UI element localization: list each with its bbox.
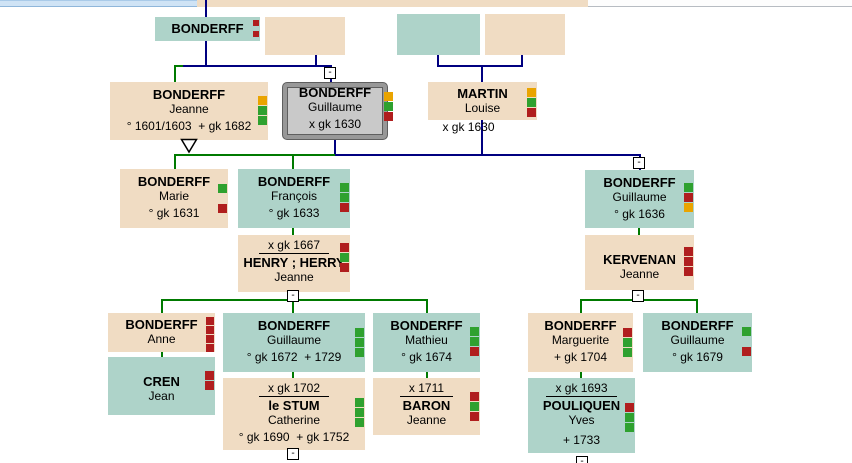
person-given-name: Mathieu [373, 333, 480, 348]
status-flag-red [218, 204, 227, 213]
status-flag-red [623, 328, 632, 337]
person-surname: BONDERFF [528, 318, 633, 333]
person-box-guillaume-selected[interactable]: BONDERFF Guillaume x gk 1630 [282, 82, 388, 140]
cropped-box-blue [0, 0, 197, 7]
tree-line [335, 154, 641, 156]
cropped-box-tan [197, 0, 588, 7]
person-given-name: François [238, 189, 350, 204]
status-flag-green [340, 193, 349, 202]
status-flag-green [625, 423, 634, 432]
tree-line [696, 299, 698, 313]
status-flags [684, 247, 693, 277]
marriage-date-line: x 1711 [373, 381, 480, 397]
person-surname: BONDERFF [223, 318, 365, 333]
person-box-bonderff-ancestor[interactable]: BONDERFF [155, 17, 260, 41]
status-flag-red [684, 193, 693, 202]
tree-line [174, 65, 176, 82]
tree-line [426, 299, 428, 313]
person-given-name: Catherine [223, 413, 365, 428]
status-flag-green [355, 408, 364, 417]
person-box-unnamed-mother-2[interactable] [485, 14, 565, 55]
person-dates: ° gk 1636 [585, 207, 694, 222]
person-box-kervenan-jeanne[interactable]: KERVENAN Jeanne [585, 235, 694, 290]
status-flag-red [340, 263, 349, 272]
person-box-francois[interactable]: BONDERFF François ° gk 1633 [238, 169, 350, 228]
status-flag-red [684, 247, 693, 256]
person-given-name: Jeanne [238, 270, 350, 285]
collapse-toggle[interactable]: - [287, 448, 299, 460]
person-box-unnamed-father-2[interactable] [397, 14, 480, 55]
person-dates: ° 1601/1603 + gk 1682 [110, 119, 268, 134]
person-surname: KERVENAN [585, 252, 694, 267]
person-dates: ° gk 1690 + gk 1752 [223, 430, 365, 445]
person-box-marie[interactable]: BONDERFF Marie ° gk 1631 [120, 169, 228, 228]
person-box-baron-jeanne[interactable]: x 1711 BARON Jeanne [373, 378, 480, 435]
tree-line [205, 41, 207, 66]
person-given-name: Jeanne [373, 413, 480, 428]
status-flag-red [625, 403, 634, 412]
status-flags [340, 183, 349, 213]
person-given-name: Marie [120, 189, 228, 204]
status-flag-green [625, 413, 634, 422]
status-flag-green [258, 116, 267, 125]
status-flags [470, 327, 479, 357]
person-given-name: Guillaume [283, 100, 387, 115]
person-surname: POULIQUEN [528, 398, 635, 413]
status-flag-green [258, 106, 267, 115]
status-flag-red [206, 344, 214, 352]
status-flag-red [205, 381, 214, 390]
status-flag-green [340, 253, 349, 262]
status-flag-green [355, 338, 364, 347]
person-marriage-date: x gk 1630 [283, 117, 387, 132]
status-flag-red [206, 335, 214, 343]
status-flag-yellow [684, 203, 693, 212]
status-flag-green [355, 328, 364, 337]
status-flag-red [684, 267, 693, 276]
status-flag-green [384, 102, 393, 111]
person-box-henry-jeanne[interactable]: x gk 1667 HENRY ; HERRY Jeanne [238, 235, 350, 292]
tree-line [437, 65, 523, 67]
status-flag-yellow [258, 96, 267, 105]
marriage-date: x 1711 [400, 381, 453, 397]
collapse-toggle[interactable]: - [324, 67, 336, 79]
status-flag-red [253, 31, 259, 37]
person-dates: + 1733 [528, 433, 635, 448]
status-flag-red [470, 412, 479, 421]
canvas-top-edge [588, 0, 852, 7]
status-flag-green [623, 348, 632, 357]
status-flags [340, 243, 349, 273]
person-given-name: Louise [428, 101, 537, 116]
marriage-date: x gk 1693 [546, 381, 616, 397]
person-given-name: Anne [108, 332, 215, 347]
status-flags [205, 371, 214, 391]
status-flags [206, 317, 214, 353]
person-box-marguerite[interactable]: BONDERFF Marguerite + gk 1704 [528, 313, 633, 372]
person-box-pouliquen-yves[interactable]: x gk 1693 POULIQUEN Yves + 1733 [528, 378, 635, 453]
status-flags [742, 327, 751, 357]
more-descendants-triangle-icon[interactable] [180, 138, 198, 154]
tree-line [315, 55, 317, 67]
status-flag-green [623, 338, 632, 347]
status-flag-red [470, 347, 479, 356]
collapse-toggle[interactable]: - [632, 290, 644, 302]
status-flag-red [206, 326, 214, 334]
status-flags [355, 328, 364, 358]
collapse-toggle[interactable]: - [633, 157, 645, 169]
person-surname: BONDERFF [585, 175, 694, 190]
status-flag-red [340, 243, 349, 252]
person-dates: ° gk 1633 [238, 206, 350, 221]
status-flag-green [355, 418, 364, 427]
person-surname: le STUM [223, 398, 365, 413]
marriage-date-label: x gk 1630 [414, 120, 523, 134]
tree-line [292, 228, 294, 235]
person-surname: BARON [373, 398, 480, 413]
person-box-guillaume-1679[interactable]: BONDERFF Guillaume ° gk 1679 [643, 313, 752, 372]
person-dates: ° gk 1674 [373, 350, 480, 365]
person-surname: BONDERFF [120, 174, 228, 189]
collapse-toggle[interactable]: - [287, 290, 299, 302]
person-given-name: Jeanne [585, 267, 694, 282]
status-flags [623, 328, 632, 358]
person-surname: BONDERFF [110, 87, 268, 102]
tree-line [292, 154, 294, 169]
person-surname: MARTIN [428, 86, 537, 101]
status-flag-green [340, 183, 349, 192]
status-flag-green [527, 98, 536, 107]
status-flag-green [218, 184, 227, 193]
status-flags [470, 392, 479, 422]
person-given-name: Jeanne [110, 102, 268, 117]
family-tree-canvas: BONDERFF BONDERFF Jeanne ° 1601/1603 + g… [0, 0, 852, 463]
person-box-lestum-catherine[interactable]: x gk 1702 le STUM Catherine ° gk 1690 + … [223, 378, 365, 450]
marriage-date-line: x gk 1667 [238, 238, 350, 254]
status-flag-green [355, 398, 364, 407]
person-given-name: Guillaume [643, 333, 752, 348]
person-box-martin-louise[interactable]: MARTIN Louise [428, 82, 537, 120]
marriage-date-line: x gk 1702 [223, 381, 365, 397]
status-flag-green [470, 402, 479, 411]
person-surname: BONDERFF [283, 85, 387, 100]
person-dates: ° gk 1679 [643, 350, 752, 365]
tree-line [638, 228, 640, 235]
person-box-unnamed-spouse-1[interactable] [265, 17, 345, 55]
status-flag-red [340, 203, 349, 212]
status-flag-yellow [527, 88, 536, 97]
status-flag-green [470, 337, 479, 346]
person-surname: BONDERFF [108, 317, 215, 332]
person-box-anne[interactable]: BONDERFF Anne [108, 313, 215, 352]
person-box-guillaume-1672[interactable]: BONDERFF Guillaume ° gk 1672 + 1729 [223, 313, 365, 372]
tree-line [181, 65, 332, 67]
collapse-toggle[interactable]: - [576, 456, 588, 463]
person-surname: BONDERFF [643, 318, 752, 333]
status-flags [355, 398, 364, 428]
person-box-mathieu[interactable]: BONDERFF Mathieu ° gk 1674 [373, 313, 480, 372]
status-flag-green [684, 183, 693, 192]
person-given-name: Jean [108, 389, 215, 404]
status-flag-red [527, 108, 536, 117]
marriage-date-line: x gk 1693 [528, 381, 635, 397]
tree-line [174, 154, 176, 169]
person-surname: CREN [108, 374, 215, 389]
person-surname: HENRY ; HERRY [238, 255, 350, 270]
person-given-name: Yves [528, 413, 635, 428]
status-flag-yellow [384, 92, 393, 101]
status-flag-red [253, 20, 259, 26]
status-flag-red [470, 392, 479, 401]
tree-line [174, 154, 335, 156]
tree-line [580, 299, 582, 313]
person-dates: ° gk 1631 [120, 206, 228, 221]
person-box-cren-jean[interactable]: CREN Jean [108, 357, 215, 415]
marriage-date: x gk 1702 [259, 381, 329, 397]
tree-line [481, 65, 483, 82]
tree-line [205, 0, 207, 17]
status-flag-green [470, 327, 479, 336]
person-surname: BONDERFF [238, 174, 350, 189]
status-flags [384, 92, 393, 122]
marriage-date: x gk 1667 [259, 238, 329, 254]
status-flag-green [742, 327, 751, 336]
status-flags [625, 403, 634, 433]
person-box-jeanne[interactable]: BONDERFF Jeanne ° 1601/1603 + gk 1682 [110, 82, 268, 140]
person-given-name: Marguerite [528, 333, 633, 348]
person-given-name: Guillaume [223, 333, 365, 348]
tree-line [161, 299, 163, 313]
status-flags [218, 184, 227, 214]
status-flag-red [205, 371, 214, 380]
status-flags [527, 88, 536, 118]
status-flag-red [684, 257, 693, 266]
person-box-guillaume-1636[interactable]: BONDERFF Guillaume ° gk 1636 [585, 170, 694, 228]
status-flags [684, 183, 693, 213]
status-flags [253, 20, 259, 42]
person-given-name: Guillaume [585, 190, 694, 205]
person-surname: BONDERFF [155, 17, 260, 40]
status-flags [258, 96, 267, 126]
person-dates: + gk 1704 [528, 350, 633, 365]
status-flag-red [384, 112, 393, 121]
status-flag-red [742, 347, 751, 356]
person-dates: ° gk 1672 + 1729 [223, 350, 365, 365]
status-flag-red [206, 317, 214, 325]
person-surname: BONDERFF [373, 318, 480, 333]
status-flag-green [355, 348, 364, 357]
